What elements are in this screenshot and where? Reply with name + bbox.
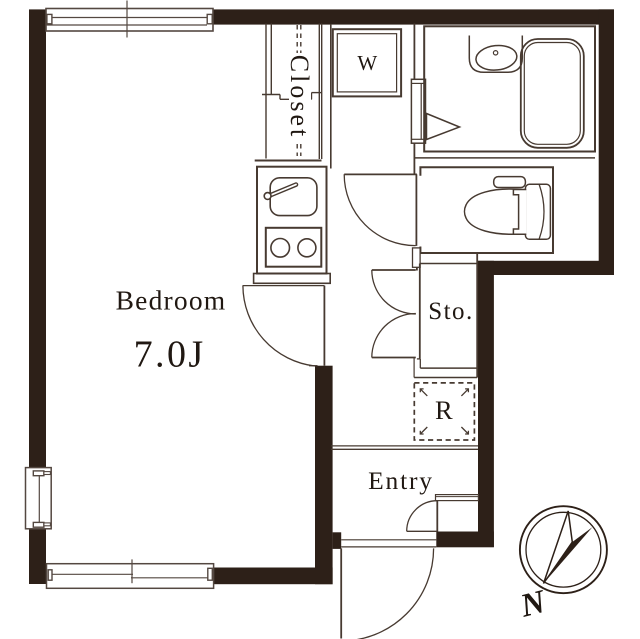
svg-text:W: W: [357, 51, 377, 75]
svg-text:Bedroom: Bedroom: [116, 285, 227, 316]
svg-text:R: R: [435, 395, 453, 425]
svg-text:Entry: Entry: [368, 466, 434, 495]
svg-text:Sto.: Sto.: [428, 298, 474, 325]
svg-text:Closet: Closet: [285, 55, 314, 139]
svg-text:7.0J: 7.0J: [134, 333, 206, 375]
